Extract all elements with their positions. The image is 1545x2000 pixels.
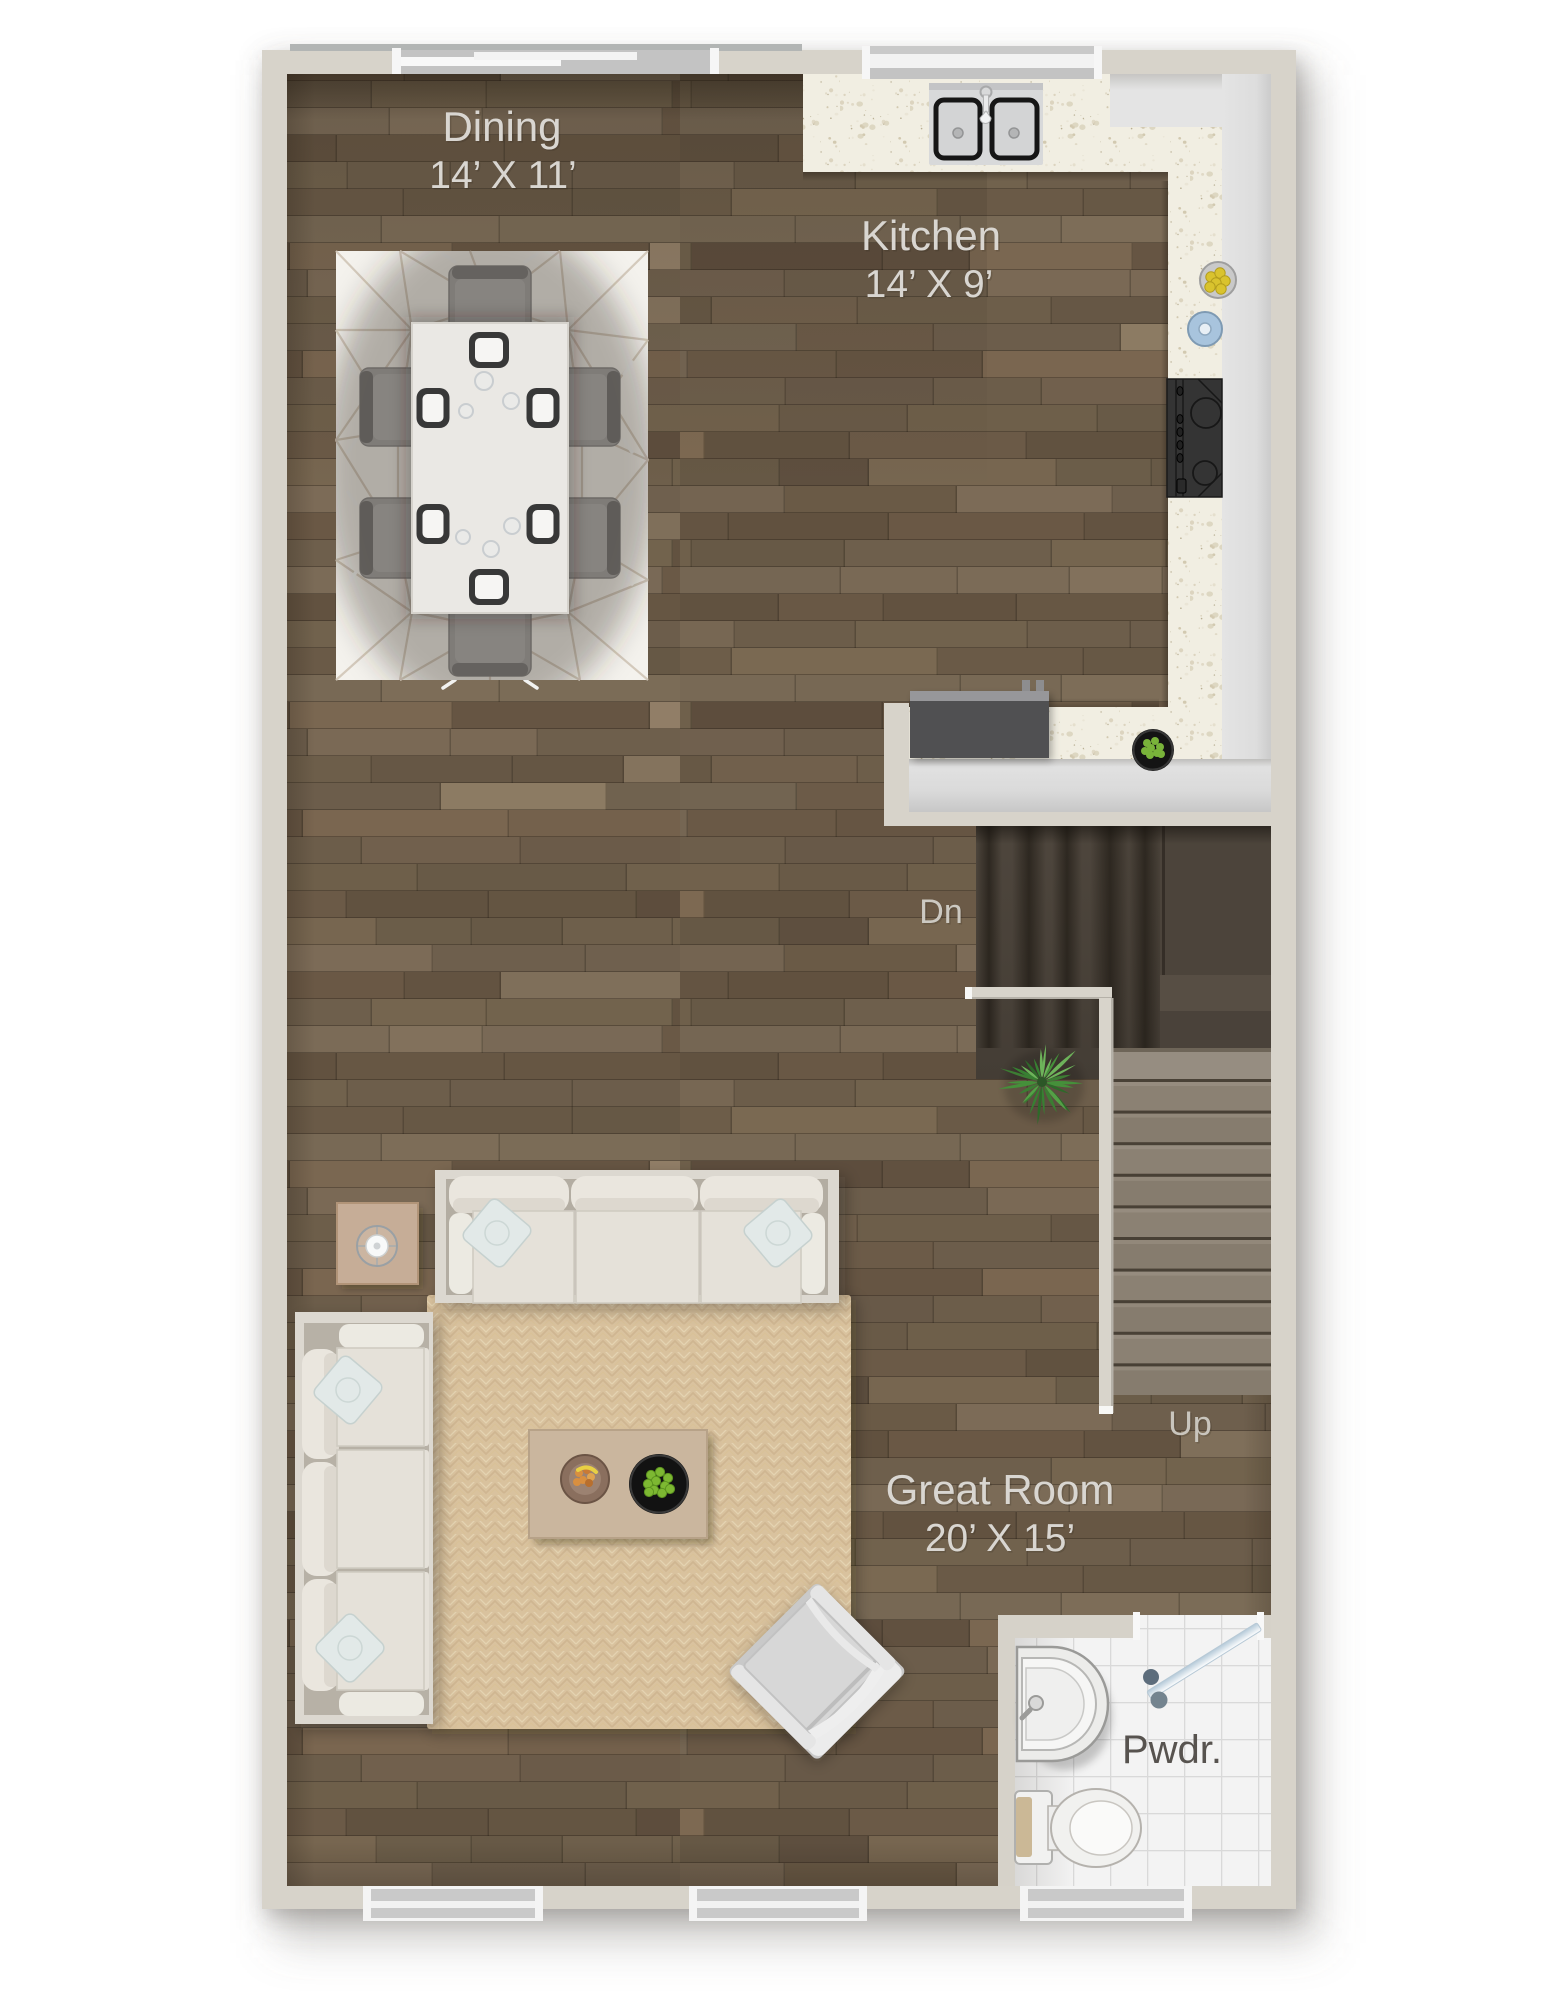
svg-text:14’ X 9’: 14’ X 9’ xyxy=(865,263,994,306)
svg-text:Dn: Dn xyxy=(919,893,962,931)
svg-text:Pwdr.: Pwdr. xyxy=(1122,1728,1222,1772)
svg-text:Kitchen: Kitchen xyxy=(861,212,1001,259)
svg-text:Dining: Dining xyxy=(442,103,561,150)
svg-text:14’ X 11’: 14’ X 11’ xyxy=(429,154,576,197)
svg-text:Great Room: Great Room xyxy=(886,1466,1115,1513)
svg-text:20’ X 15’: 20’ X 15’ xyxy=(925,1517,1075,1560)
svg-text:Up: Up xyxy=(1168,1405,1211,1443)
